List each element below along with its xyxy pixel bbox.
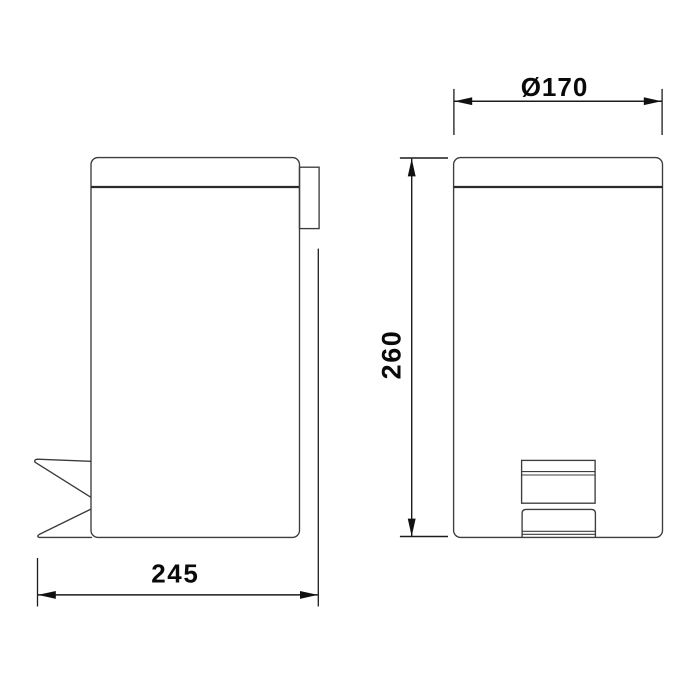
- svg-text:260: 260: [377, 330, 407, 380]
- svg-text:Ø170: Ø170: [521, 72, 589, 102]
- svg-text:245: 245: [151, 559, 199, 589]
